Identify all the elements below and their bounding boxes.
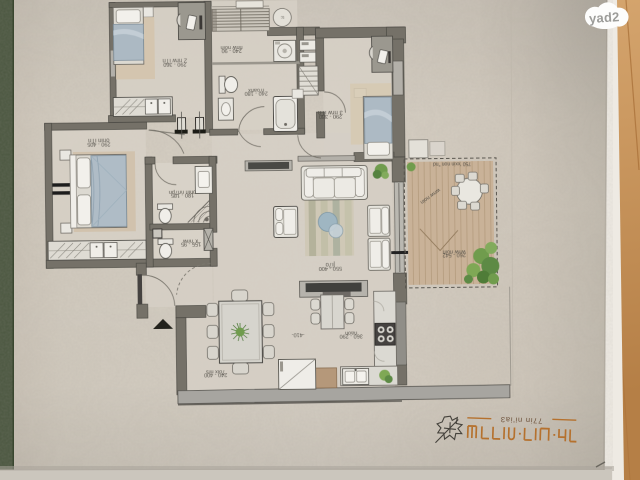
svg-text:240 - 400: 240 - 400 <box>204 371 227 377</box>
svg-text:240 - 180: 240 - 180 <box>245 90 268 96</box>
svg-text:290 - 405: 290 - 405 <box>87 141 110 147</box>
svg-text:-410-: -410- <box>292 331 305 337</box>
svg-text:290 - 360: 290 - 360 <box>163 61 186 67</box>
svg-text:155 - 95: 155 - 95 <box>181 240 201 246</box>
svg-text:260 - 542: 260 - 542 <box>443 251 466 257</box>
svg-text:77in ni'ia3: 77in ni'ia3 <box>500 415 543 425</box>
svg-text:750 'xxin non "nd: 750 'xxin non "nd <box>433 160 471 166</box>
svg-text:yad2: yad2 <box>589 9 620 26</box>
svg-text:290 - 380: 290 - 380 <box>319 113 342 119</box>
svg-text:240 - 90: 240 - 90 <box>222 47 242 53</box>
svg-text:180 - 185: 180 - 185 <box>171 192 194 198</box>
svg-text:550 - 400: 550 - 400 <box>319 265 342 271</box>
svg-text:360 - 290: 360 - 290 <box>340 332 363 338</box>
